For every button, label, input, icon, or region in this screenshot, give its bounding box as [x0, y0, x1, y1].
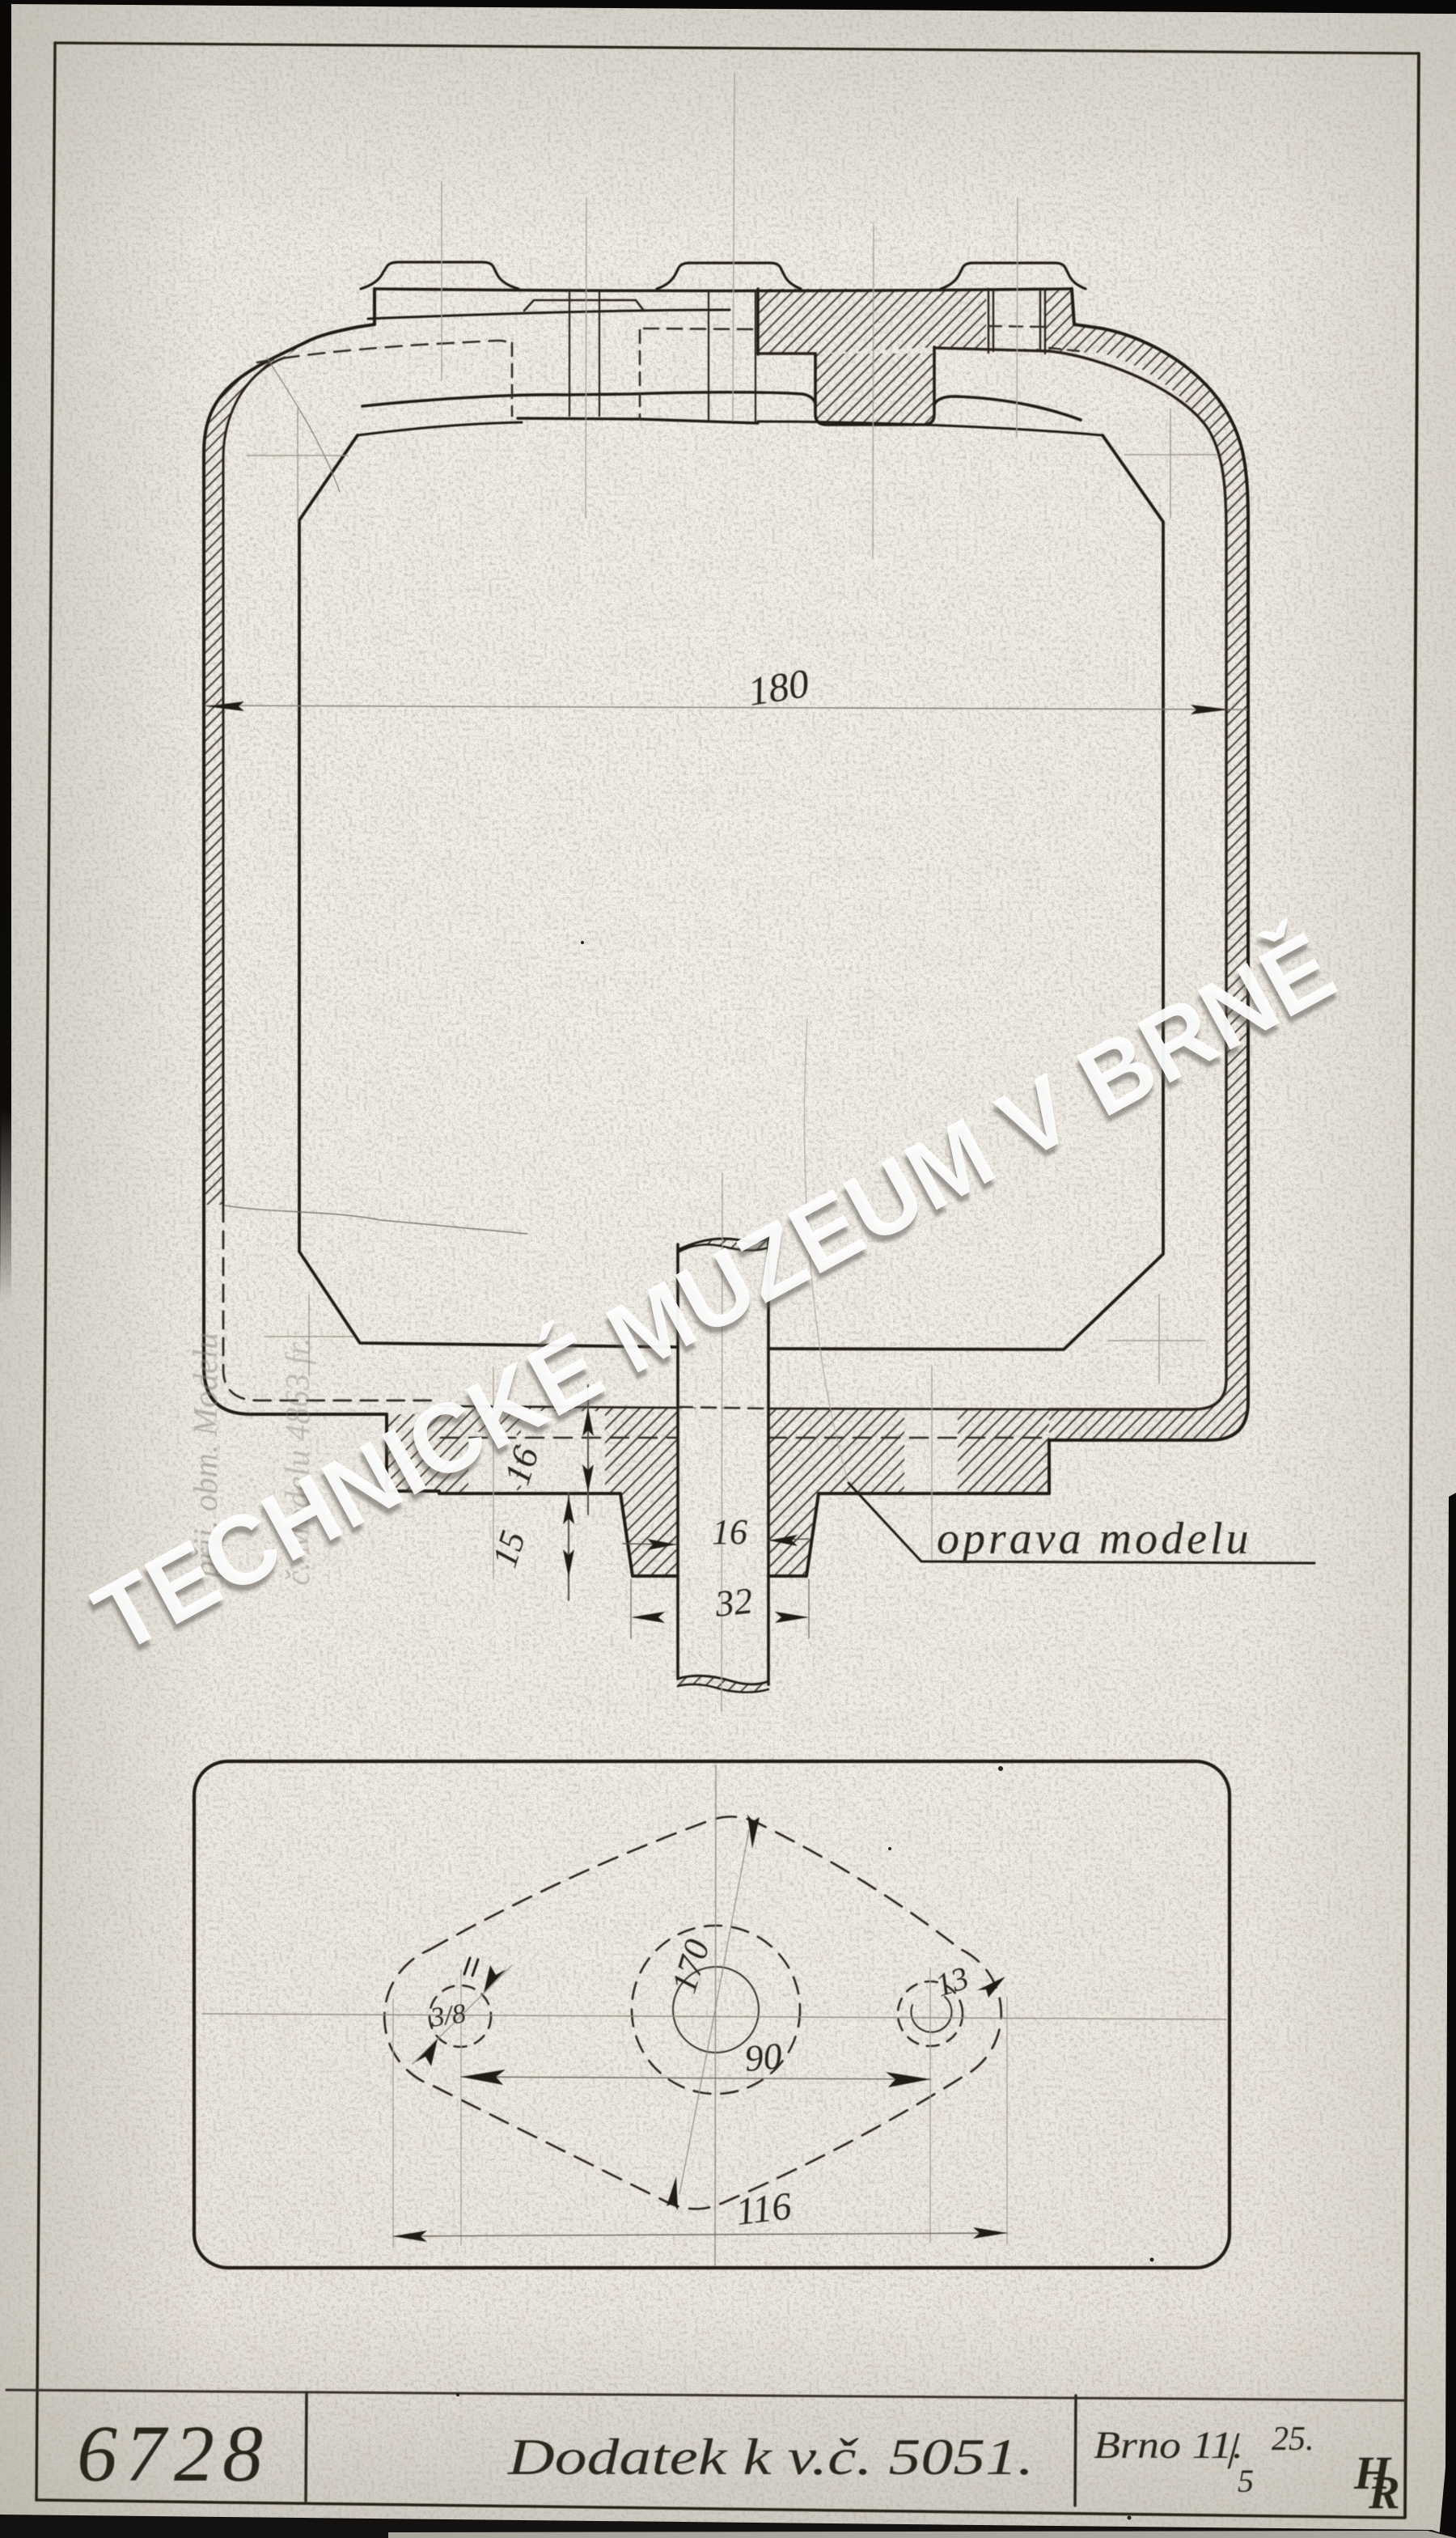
svg-text:180: 180: [745, 660, 812, 714]
svg-text:5: 5: [1238, 2463, 1254, 2499]
svg-text:32: 32: [713, 1579, 755, 1625]
svg-text:25.: 25.: [1272, 2421, 1314, 2458]
svg-text:6728: 6728: [77, 2409, 271, 2498]
svg-text:16: 16: [712, 1512, 747, 1552]
svg-text:R: R: [1368, 2466, 1400, 2519]
svg-text:3/8: 3/8: [428, 1998, 468, 2033]
svg-text:90: 90: [743, 2035, 783, 2079]
svg-text:116: 116: [734, 2184, 794, 2234]
svg-text:Dodatek k v.č. 5051.: Dodatek k v.č. 5051.: [507, 2428, 1034, 2485]
svg-text:oprava modelu: oprava modelu: [937, 1514, 1252, 1564]
